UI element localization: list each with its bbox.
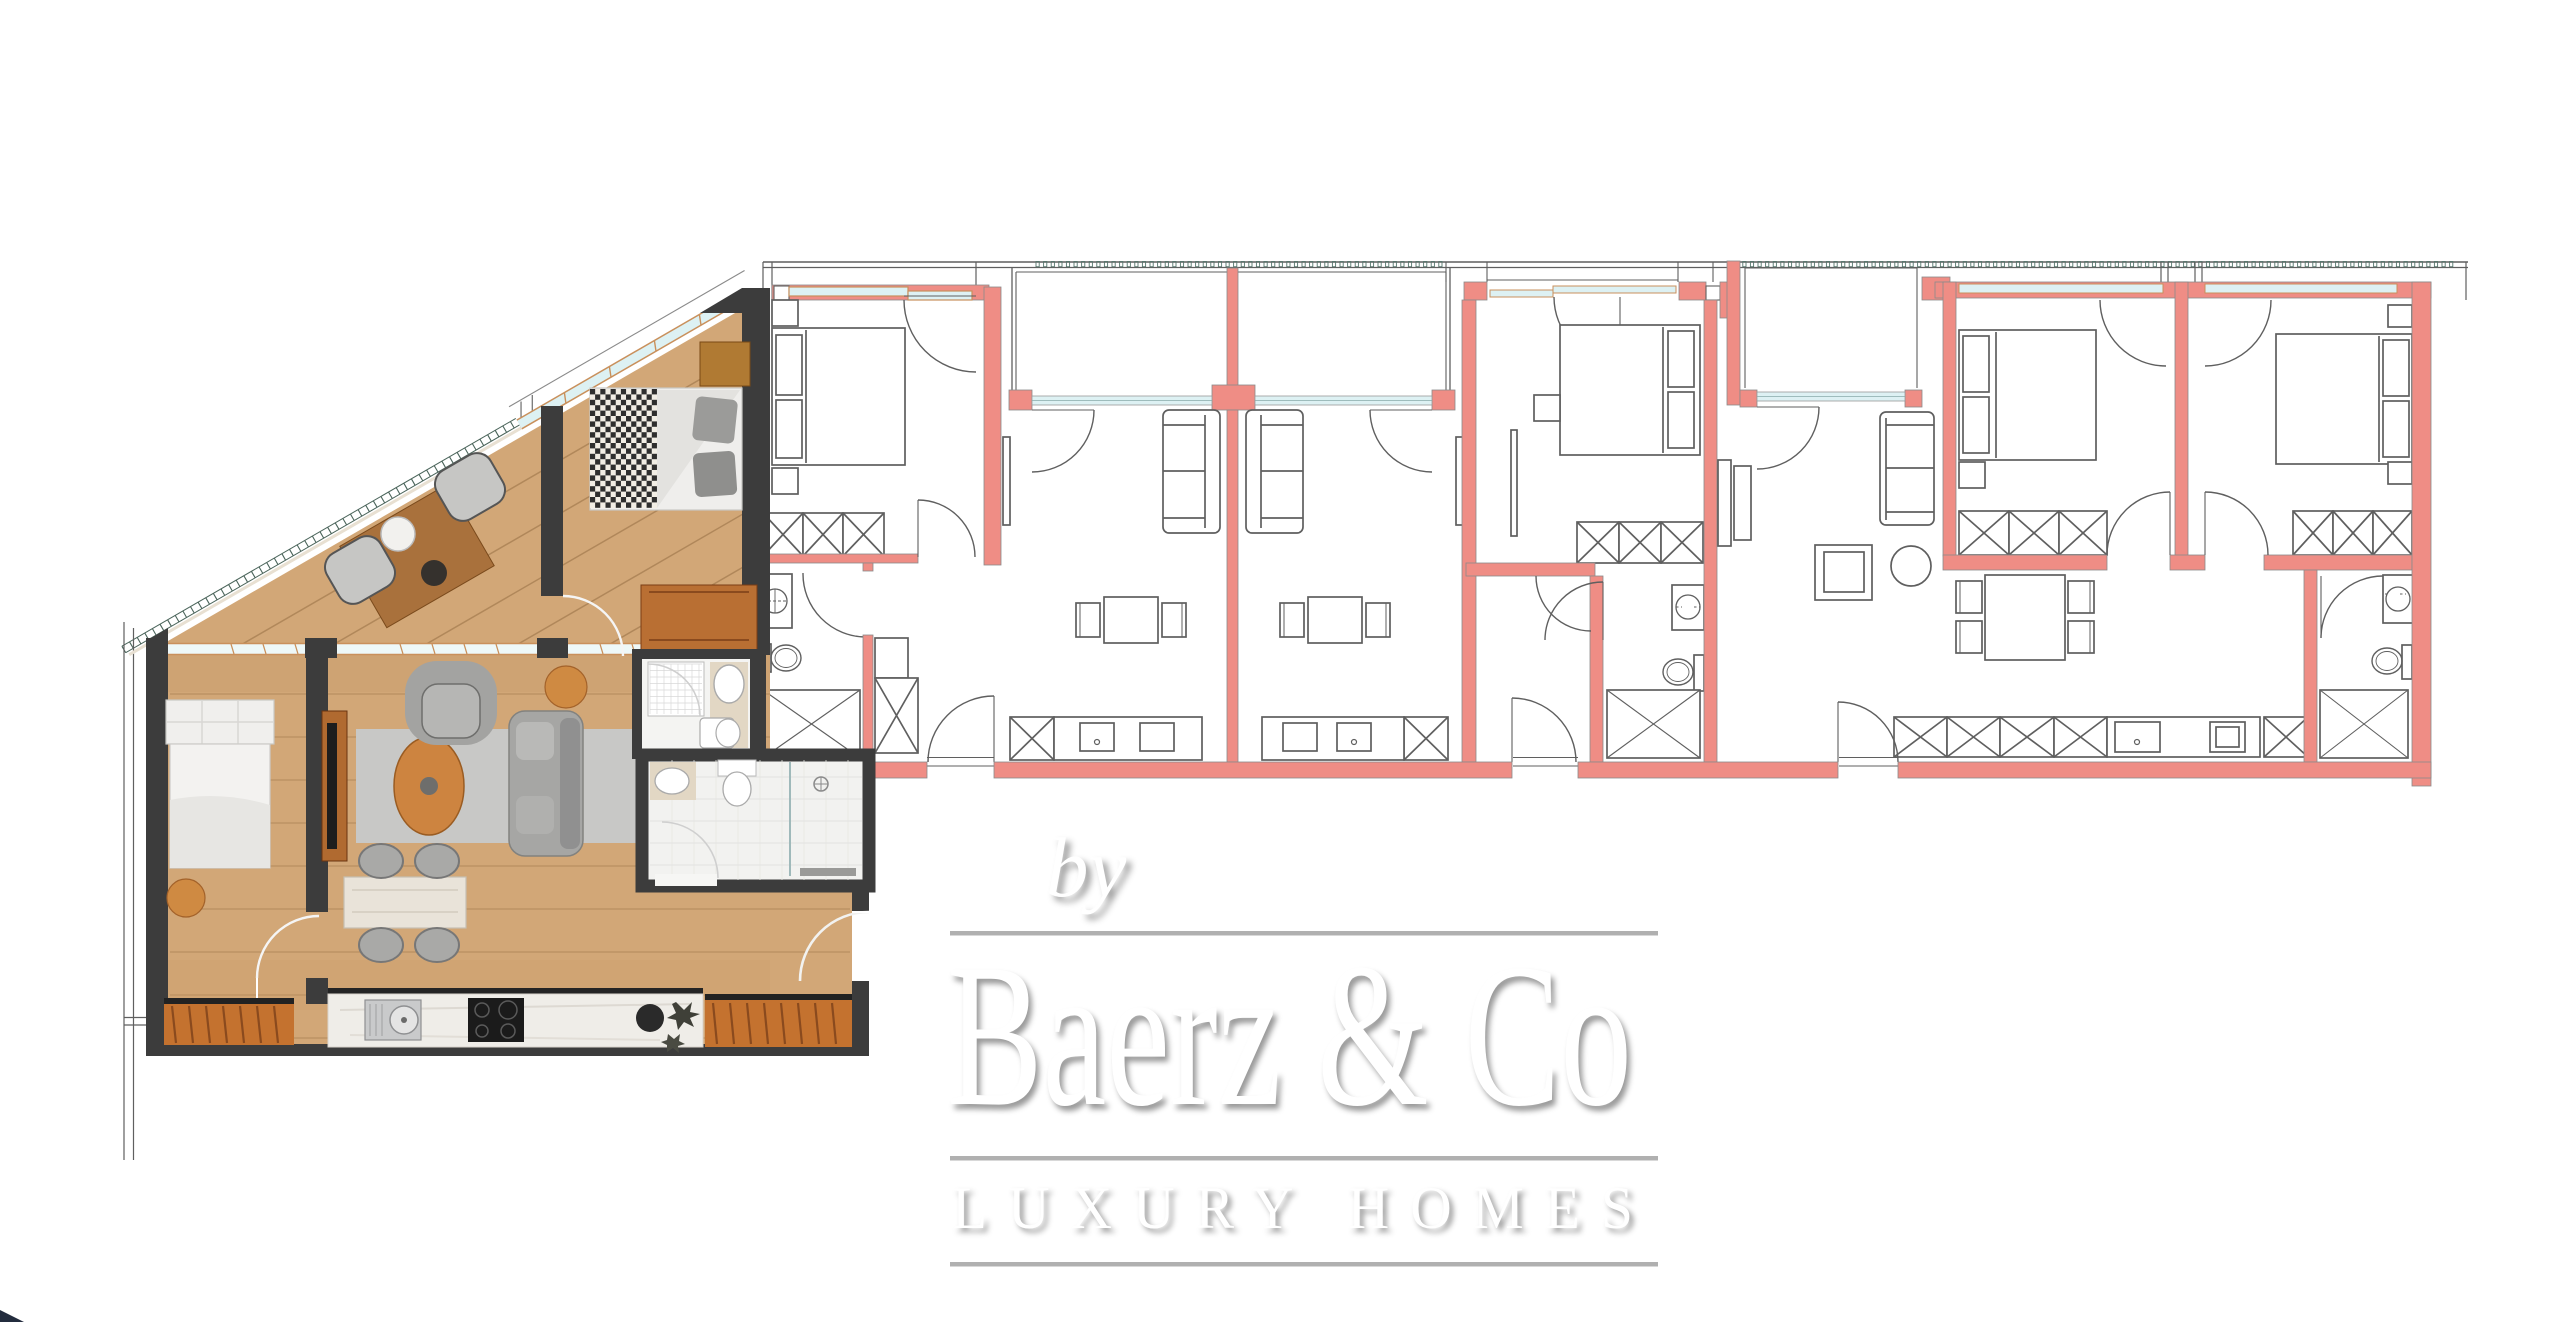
svg-text:LUXURY HOMES: LUXURY HOMES bbox=[952, 1175, 1654, 1241]
svg-text:Baerz & Co: Baerz & Co bbox=[947, 922, 1632, 1149]
svg-text:by: by bbox=[1046, 821, 1127, 915]
